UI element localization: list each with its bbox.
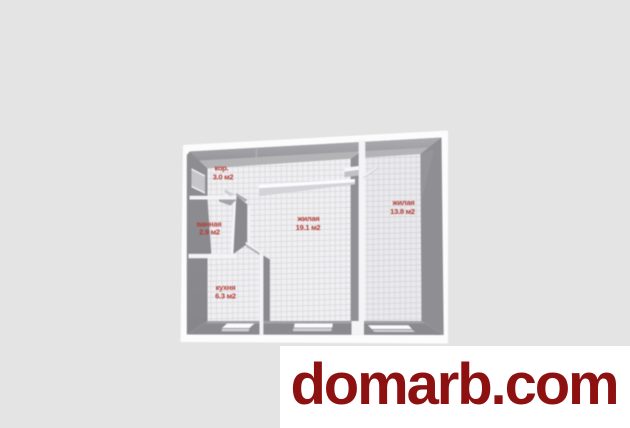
svg-text:6.3 м2: 6.3 м2	[215, 291, 236, 300]
svg-text:жилая: жилая	[392, 198, 415, 207]
svg-text:13.8 м2: 13.8 м2	[390, 207, 415, 216]
svg-text:19.1 м2: 19.1 м2	[296, 223, 321, 232]
svg-text:2.9 м2: 2.9 м2	[199, 228, 220, 237]
svg-text:кор.: кор.	[215, 164, 229, 173]
svg-text:3.0 м2: 3.0 м2	[213, 173, 234, 182]
svg-text:жилая: жилая	[297, 214, 320, 223]
